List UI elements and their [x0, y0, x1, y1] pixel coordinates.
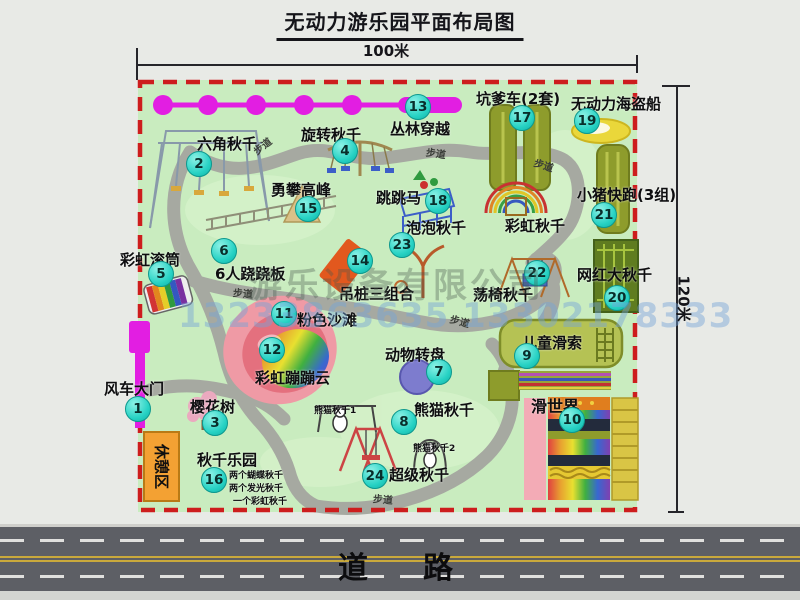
zipline-graphic	[153, 95, 462, 115]
slide-world-graphic	[489, 371, 638, 500]
road: 道路	[0, 524, 800, 591]
curb-strip	[0, 591, 800, 600]
jumping-horse-graphic	[400, 170, 454, 233]
park-layout-plan: { "title": "无动力游乐园平面布局图", "dimensions": …	[0, 0, 800, 600]
rest-area-label: 休憩区	[152, 429, 173, 505]
road-label: 道路	[338, 543, 508, 587]
page-title: 无动力游乐园平面布局图	[277, 6, 524, 41]
pig-run-track-graphic	[597, 145, 629, 233]
animal-turntable-graphic	[400, 360, 434, 394]
windmill-gate-top	[129, 321, 150, 353]
pirate-boat-graphic	[572, 119, 630, 143]
sakura-tree-graphic	[187, 391, 217, 430]
dimension-width-label: 100米	[336, 40, 436, 61]
dimension-height-label: 120米	[674, 269, 695, 329]
road-lane-dash-top	[0, 539, 800, 542]
windmill-gate-post	[135, 353, 145, 428]
watermark-phone-numbers: 13233863635 13302178333	[178, 296, 733, 336]
